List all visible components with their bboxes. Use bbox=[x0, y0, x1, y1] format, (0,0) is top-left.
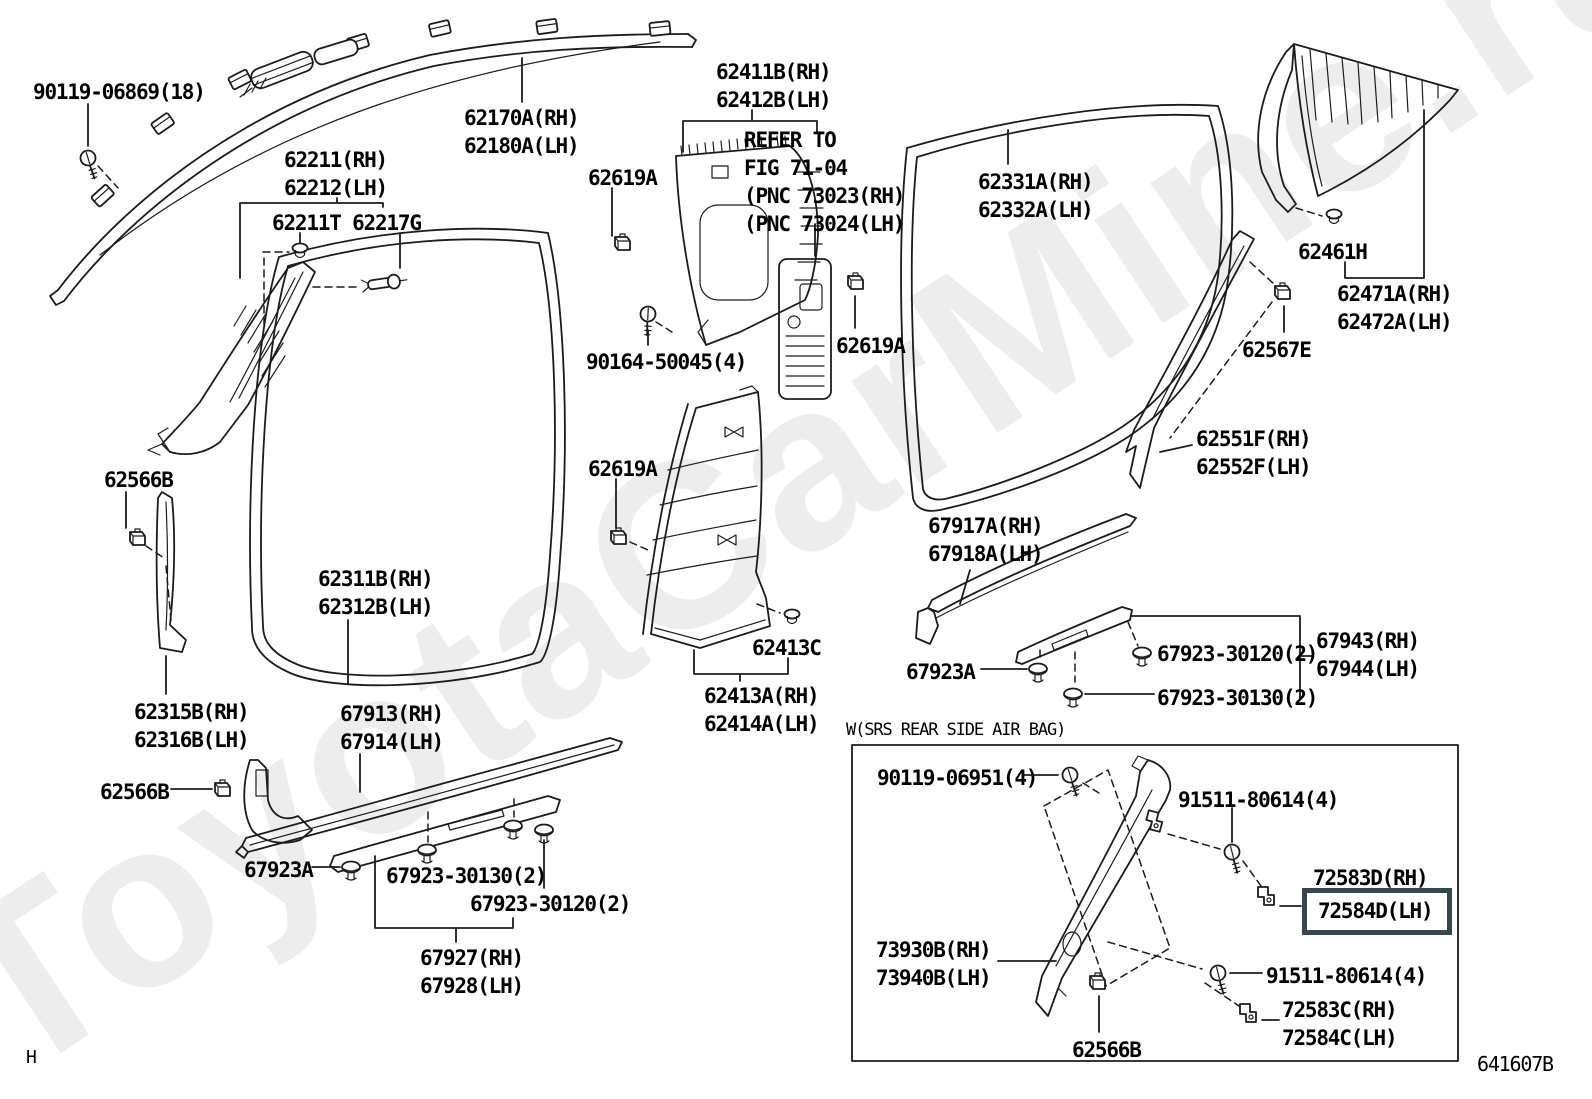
trim-clip-icon bbox=[848, 273, 863, 289]
part-label-67923A-l[interactable]: 67923A bbox=[244, 856, 313, 884]
part-label-line[interactable]: 91511-80614(4) bbox=[1178, 786, 1338, 814]
part-label-line[interactable]: 67944(LH) bbox=[1316, 655, 1419, 683]
part-label-62211-62212[interactable]: 62211(RH)62212(LH) bbox=[284, 146, 387, 202]
part-label-line[interactable]: 62413C bbox=[752, 634, 821, 662]
part-label-line[interactable]: 62311B(RH) bbox=[318, 565, 432, 593]
part-label-62566B-3[interactable]: 62566B bbox=[1072, 1036, 1141, 1064]
push-rivet-icon bbox=[342, 862, 360, 881]
part-label-72583D[interactable]: 72583D(RH) bbox=[1313, 864, 1427, 892]
bracket-clip-icon bbox=[1144, 810, 1164, 832]
cowl-corner-garnish bbox=[244, 760, 312, 843]
part-label-refer-note: REFER TOFIG 71-04(PNC 73023(RH)(PNC 7302… bbox=[744, 126, 904, 238]
part-label-62170A-62180A[interactable]: 62170A(RH)62180A(LH) bbox=[464, 104, 578, 160]
front-door-sill-garnish bbox=[236, 738, 622, 858]
part-label-line[interactable]: 67923-30130(2) bbox=[386, 862, 546, 890]
part-label-72583C-72584C[interactable]: 72583C(RH)72584C(LH) bbox=[1282, 996, 1396, 1052]
part-label-line[interactable]: 67914(LH) bbox=[340, 728, 443, 756]
part-label-line[interactable]: 62552F(LH) bbox=[1196, 453, 1310, 481]
part-label-line[interactable]: 73930B(RH) bbox=[876, 936, 990, 964]
screw-icon bbox=[74, 148, 108, 181]
part-label-62567E[interactable]: 62567E bbox=[1242, 336, 1311, 364]
bolt-icon bbox=[1217, 841, 1251, 874]
part-label-line[interactable]: 72583D(RH) bbox=[1313, 864, 1427, 892]
part-label-line[interactable]: 62212(LH) bbox=[284, 174, 387, 202]
part-label-line[interactable]: 62566B bbox=[100, 778, 169, 806]
part-label-62315B-62316B[interactable]: 62315B(RH)62316B(LH) bbox=[134, 698, 248, 754]
part-label-line[interactable]: 67923A bbox=[906, 658, 975, 686]
part-label-line[interactable]: 62331A(RH) bbox=[978, 168, 1092, 196]
part-label-line[interactable]: 62619A bbox=[588, 455, 657, 483]
part-label-line[interactable]: 91511-80614(4) bbox=[1266, 962, 1426, 990]
cowl-side-trim bbox=[157, 492, 186, 652]
part-label-62566B-2[interactable]: 62566B bbox=[100, 778, 169, 806]
part-label-line[interactable]: 62211T 62217G bbox=[272, 209, 421, 237]
part-label-line: (PNC 73023(RH) bbox=[744, 182, 904, 210]
bracket-clip-icon bbox=[1258, 887, 1274, 905]
part-label-73930B-73940B[interactable]: 73930B(RH)73940B(LH) bbox=[876, 936, 990, 992]
part-label-line[interactable]: 62619A bbox=[588, 164, 657, 192]
part-label-line[interactable]: 67918A(LH) bbox=[928, 540, 1042, 568]
part-label-90119-06951[interactable]: 90119-06951(4) bbox=[877, 764, 1037, 792]
part-label-62331A-62332A[interactable]: 62331A(RH)62332A(LH) bbox=[978, 168, 1092, 224]
part-label-62211T-62217G[interactable]: 62211T 62217G bbox=[272, 209, 421, 237]
screw-icon bbox=[1056, 765, 1090, 798]
part-label-line[interactable]: 62332A(LH) bbox=[978, 196, 1092, 224]
part-label-line[interactable]: 67913(RH) bbox=[340, 700, 443, 728]
push-rivet-icon bbox=[504, 821, 522, 840]
part-label-67923-30130-l[interactable]: 67923-30130(2) bbox=[386, 862, 546, 890]
part-label-67913-67914[interactable]: 67913(RH)67914(LH) bbox=[340, 700, 443, 756]
part-label-62551F-62552F[interactable]: 62551F(RH)62552F(LH) bbox=[1196, 425, 1310, 481]
part-label-line[interactable]: 62472A(LH) bbox=[1337, 308, 1451, 336]
part-label-62411B-62412B[interactable]: 62411B(RH)62412B(LH) bbox=[716, 58, 830, 114]
part-label-line[interactable]: 73940B(LH) bbox=[876, 964, 990, 992]
trim-clip-icon bbox=[130, 529, 145, 545]
part-label-62461H[interactable]: 62461H bbox=[1298, 238, 1367, 266]
part-label-line: W(SRS REAR SIDE AIR BAG) bbox=[846, 720, 1065, 740]
part-label-67923A-r[interactable]: 67923A bbox=[906, 658, 975, 686]
part-label-line[interactable]: 67923A bbox=[244, 856, 313, 884]
part-label-72584D[interactable]: 72584D(LH) bbox=[1318, 897, 1432, 925]
part-label-line[interactable]: 62619A bbox=[836, 332, 905, 360]
part-label-line[interactable]: 62551F(RH) bbox=[1196, 425, 1310, 453]
part-label-line: (PNC 73024(LH) bbox=[744, 210, 904, 238]
part-label-line[interactable]: 62566B bbox=[104, 466, 173, 494]
part-label-62619A-3[interactable]: 62619A bbox=[588, 455, 657, 483]
quarter-pillar-upper-garnish bbox=[1258, 44, 1458, 212]
part-label-62311B-62312B[interactable]: 62311B(RH)62312B(LH) bbox=[318, 565, 432, 621]
part-label-91511-80614-1[interactable]: 91511-80614(4) bbox=[1178, 786, 1338, 814]
part-label-line[interactable]: 62461H bbox=[1298, 238, 1367, 266]
part-label-67923-30130-r[interactable]: 67923-30130(2) bbox=[1157, 684, 1317, 712]
part-label-line[interactable]: 90164-50045(4) bbox=[586, 348, 746, 376]
part-label-line[interactable]: 72583C(RH) bbox=[1282, 996, 1396, 1024]
part-label-62619A-1[interactable]: 62619A bbox=[588, 164, 657, 192]
page-code: 641607B bbox=[1477, 1050, 1553, 1078]
part-label-line[interactable]: 62414A(LH) bbox=[704, 710, 818, 738]
part-label-line[interactable]: 67917A(RH) bbox=[928, 512, 1042, 540]
part-label-line[interactable]: 62312B(LH) bbox=[318, 593, 432, 621]
part-label-90164-50045[interactable]: 90164-50045(4) bbox=[586, 348, 746, 376]
part-label-line[interactable]: 62316B(LH) bbox=[134, 726, 248, 754]
trim-clip-icon bbox=[611, 528, 626, 544]
part-label-91511-80614-2[interactable]: 91511-80614(4) bbox=[1266, 962, 1426, 990]
part-label-line[interactable]: 72584C(LH) bbox=[1282, 1024, 1396, 1052]
part-label-line[interactable]: 62411B(RH) bbox=[716, 58, 830, 86]
part-label-line[interactable]: 90119-06869(18) bbox=[33, 78, 205, 106]
part-label-line[interactable]: 62471A(RH) bbox=[1337, 280, 1451, 308]
push-rivet-icon bbox=[1029, 664, 1047, 683]
grommet-icon bbox=[1327, 210, 1342, 224]
b-pillar-lower-garnish bbox=[643, 386, 770, 648]
part-label-line[interactable]: 62566B bbox=[1072, 1036, 1141, 1064]
push-rivet-icon bbox=[1133, 648, 1151, 667]
trim-clip-icon bbox=[1275, 283, 1290, 299]
part-label-line[interactable]: 62315B(RH) bbox=[134, 698, 248, 726]
part-label-67943-67944[interactable]: 67943(RH)67944(LH) bbox=[1316, 627, 1419, 683]
part-label-line: REFER TO bbox=[744, 126, 904, 154]
part-label-67917A-67918A[interactable]: 67917A(RH)67918A(LH) bbox=[928, 512, 1042, 568]
bolt-icon bbox=[1203, 962, 1237, 995]
part-label-line[interactable]: 62567E bbox=[1242, 336, 1311, 364]
part-label-line: FIG 71-04 bbox=[744, 154, 904, 182]
a-pillar-garnish bbox=[148, 262, 315, 455]
corner-marker: H bbox=[26, 1044, 36, 1072]
part-label-line[interactable]: 62170A(RH) bbox=[464, 104, 578, 132]
part-label-srs-caption: W(SRS REAR SIDE AIR BAG) bbox=[846, 720, 1065, 740]
rear-door-opening-trim bbox=[901, 105, 1232, 511]
part-label-line[interactable]: 67928(LH) bbox=[420, 972, 523, 1000]
part-label-67923-30120-l[interactable]: 67923-30120(2) bbox=[470, 890, 630, 918]
part-label-line[interactable]: 62180A(LH) bbox=[464, 132, 578, 160]
part-label-line[interactable]: 62211(RH) bbox=[284, 146, 387, 174]
grommet-icon bbox=[785, 610, 800, 624]
part-label-62413A-62414A[interactable]: 62413A(RH)62414A(LH) bbox=[704, 682, 818, 738]
parts-diagram-page: ToyotaCarMine.ru bbox=[0, 0, 1592, 1099]
part-label-62566B-1[interactable]: 62566B bbox=[104, 466, 173, 494]
part-label-62471A-62472A[interactable]: 62471A(RH)62472A(LH) bbox=[1337, 280, 1451, 336]
part-label-90119-06869[interactable]: 90119-06869(18) bbox=[33, 78, 205, 106]
part-label-line[interactable]: 62412B(LH) bbox=[716, 86, 830, 114]
push-rivet-icon bbox=[1064, 689, 1082, 708]
part-label-62619A-2[interactable]: 62619A bbox=[836, 332, 905, 360]
part-label-67927-67928[interactable]: 67927(RH)67928(LH) bbox=[420, 944, 523, 1000]
part-label-line[interactable]: 67943(RH) bbox=[1316, 627, 1419, 655]
rear-kick-plate bbox=[1016, 607, 1132, 664]
part-label-line[interactable]: 67927(RH) bbox=[420, 944, 523, 972]
part-label-line[interactable]: 67923-30120(2) bbox=[1157, 640, 1317, 668]
part-label-line[interactable]: 90119-06951(4) bbox=[877, 764, 1037, 792]
trim-clip-icon bbox=[615, 234, 630, 250]
front-scuff-plate bbox=[330, 796, 560, 872]
push-rivet-icon bbox=[418, 845, 436, 864]
grommet-icon bbox=[293, 244, 308, 258]
bracket-clip-icon bbox=[1240, 1004, 1256, 1022]
part-label-line[interactable]: 67923-30120(2) bbox=[470, 890, 630, 918]
part-label-67923-30120-r[interactable]: 67923-30120(2) bbox=[1157, 640, 1317, 668]
part-label-line[interactable]: 72584D(LH) bbox=[1318, 897, 1432, 925]
pin-clip-icon bbox=[361, 273, 408, 293]
part-label-line[interactable]: 62413A(RH) bbox=[704, 682, 818, 710]
part-label-line[interactable]: 67923-30130(2) bbox=[1157, 684, 1317, 712]
part-label-62413C[interactable]: 62413C bbox=[752, 634, 821, 662]
trim-clip-icon bbox=[215, 780, 230, 796]
